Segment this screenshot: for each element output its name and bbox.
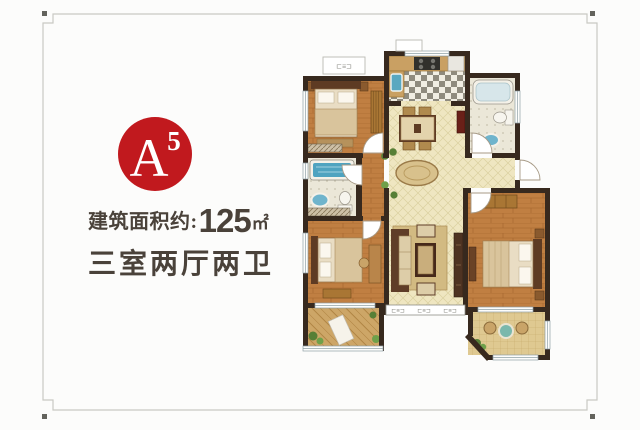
dim-label-top: ⊏≡⊐: [336, 64, 352, 71]
sill-dim-1: ⊏≡⊐: [391, 309, 405, 315]
poster: A 5 建筑面积约: 125 ㎡ 三室两厅两卫: [0, 0, 640, 430]
area-line: 建筑面积约: 125 ㎡: [88, 203, 274, 237]
frame-dot-top-left: [42, 11, 47, 16]
unit-info: 建筑面积约: 125 ㎡ 三室两厅两卫: [88, 203, 274, 282]
room-passage: [362, 158, 384, 221]
kitchen-vent-box: [396, 40, 422, 51]
frame-dot-top-right: [590, 11, 595, 16]
layout-text: 三室两厅两卫: [88, 242, 274, 282]
area-label: 建筑面积约:: [88, 207, 198, 237]
floorplan: ⊏≡⊐ ⊏≡⊐ ⊏≡⊐ ⊏≡⊐: [283, 33, 570, 368]
badge-letter: A: [130, 128, 169, 188]
frame-dot-bottom-left: [42, 414, 47, 419]
unit-badge: A 5: [117, 116, 193, 192]
area-value: 125: [199, 204, 251, 237]
entry-door: [520, 160, 540, 180]
badge-number: 5: [167, 126, 181, 156]
frame-dot-bottom-right: [590, 414, 595, 419]
area-unit: ㎡: [252, 211, 269, 237]
living-window-sill: ⊏≡⊐ ⊏≡⊐ ⊏≡⊐: [386, 305, 465, 315]
sill-dim-2: ⊏≡⊐: [417, 309, 431, 315]
sill-dim-3: ⊏≡⊐: [443, 309, 457, 315]
dim-label-box: ⊏≡⊐: [323, 57, 365, 74]
